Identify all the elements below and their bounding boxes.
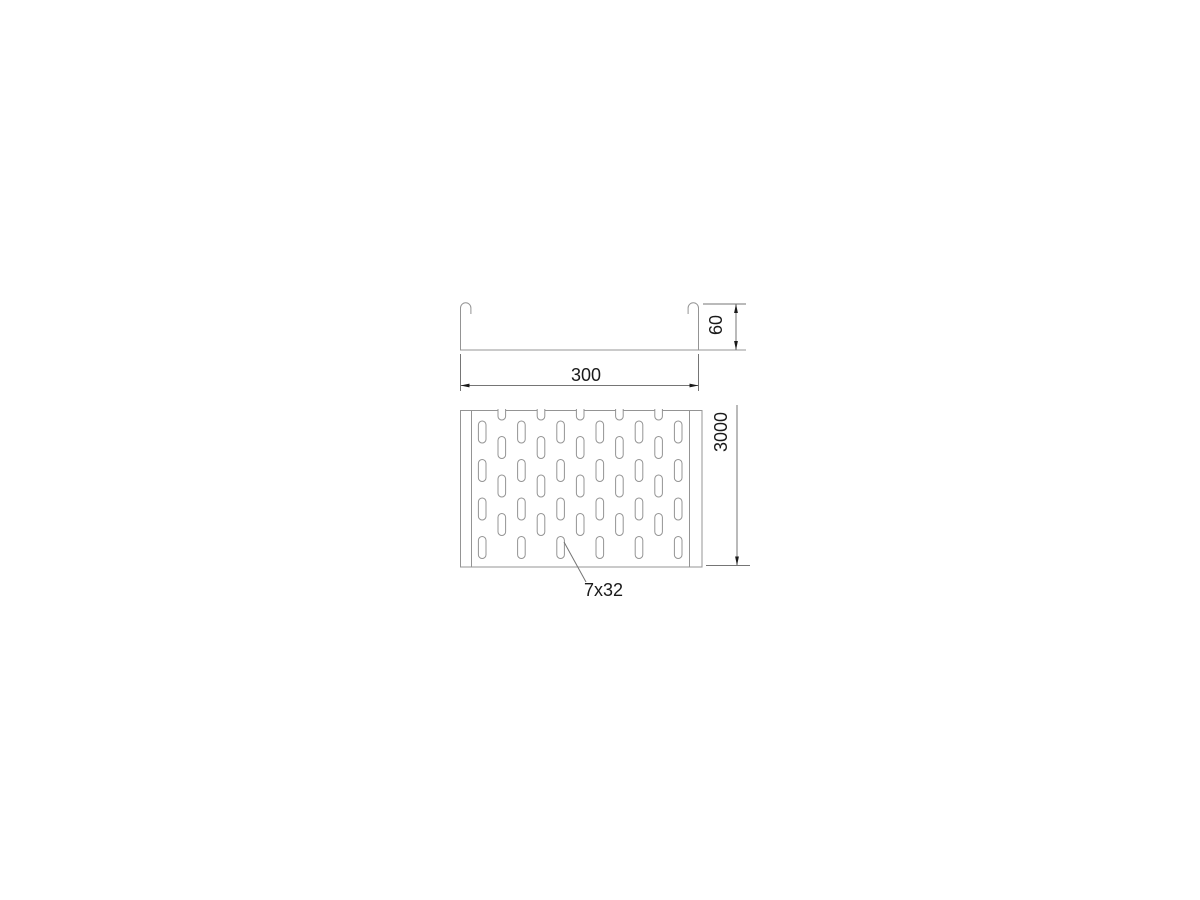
perforation-slot	[478, 498, 486, 520]
width-dimension-text: 300	[571, 365, 601, 385]
perforation-slot	[557, 498, 565, 520]
perforation-slot	[616, 437, 624, 459]
perforation-slot	[518, 537, 526, 559]
perforation-slot	[674, 421, 682, 443]
arrowhead-down	[735, 557, 739, 566]
perforation-layer	[478, 409, 682, 559]
technical-drawing: 300 60 3000 7x32	[0, 0, 1200, 900]
perforation-slot	[635, 537, 643, 559]
perforation-label-text: 7x32	[584, 580, 623, 600]
perforation-slot	[596, 421, 604, 443]
perforation-slot	[478, 421, 486, 443]
perforation-slot	[557, 460, 565, 482]
length-dimension: 3000	[706, 405, 750, 566]
perforation-slot	[655, 437, 663, 459]
arrowhead-left	[461, 384, 470, 388]
arrowhead-up	[734, 304, 738, 313]
perforation-slot	[557, 421, 565, 443]
perforation-slot	[478, 537, 486, 559]
perforation-slot	[596, 537, 604, 559]
perforation-slot	[576, 475, 584, 497]
perforation-slot	[596, 460, 604, 482]
perforation-slot	[498, 514, 506, 536]
perforation-slot	[478, 460, 486, 482]
tray-right-wall-hook	[688, 303, 698, 350]
perforation-slot	[596, 498, 604, 520]
drawing-canvas: 300 60 3000 7x32	[0, 0, 1200, 900]
plan-view: 3000 7x32	[461, 405, 751, 600]
perforation-slot	[635, 460, 643, 482]
length-dimension-text: 3000	[711, 412, 731, 452]
perforation-slot	[498, 437, 506, 459]
top-edge-notch	[537, 409, 545, 420]
perforation-slot	[518, 421, 526, 443]
perforation-slot	[655, 475, 663, 497]
leader-line	[564, 542, 586, 582]
perforation-slot	[576, 514, 584, 536]
tray-plate-outline	[461, 411, 703, 568]
height-dimension-text: 60	[706, 315, 726, 335]
perforation-slot	[557, 537, 565, 559]
perforation-slot	[616, 514, 624, 536]
perforation-slot	[616, 475, 624, 497]
top-edge-notch	[498, 409, 506, 420]
arrowhead-down	[734, 341, 738, 350]
perforation-slot	[674, 537, 682, 559]
top-edge-notch	[576, 409, 584, 420]
cross-section-view: 300 60	[460, 303, 746, 391]
perforation-slot	[518, 460, 526, 482]
perforation-slot	[518, 498, 526, 520]
perforation-callout: 7x32	[564, 542, 623, 600]
perforation-slot	[537, 437, 545, 459]
perforation-slot	[655, 514, 663, 536]
perforation-slot	[635, 421, 643, 443]
top-edge-notch	[616, 409, 624, 420]
perforation-slot	[537, 475, 545, 497]
perforation-slot	[635, 498, 643, 520]
perforation-slot	[537, 514, 545, 536]
perforation-slot	[674, 460, 682, 482]
perforation-slot	[576, 437, 584, 459]
width-dimension: 300	[461, 354, 699, 391]
height-dimension: 60	[703, 304, 746, 350]
perforation-slot	[674, 498, 682, 520]
arrowhead-right	[690, 384, 699, 388]
perforation-slot	[498, 475, 506, 497]
tray-left-wall-hook	[461, 303, 471, 350]
top-edge-notch	[655, 409, 663, 420]
